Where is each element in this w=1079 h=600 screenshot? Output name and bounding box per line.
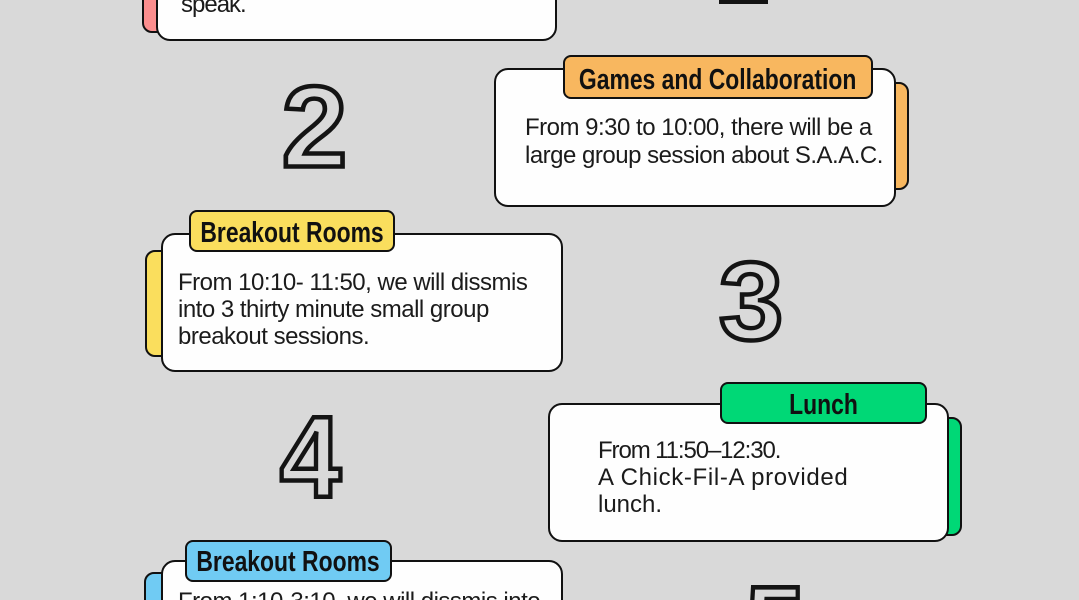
svg-text:3: 3 [719, 240, 783, 363]
svg-text:5: 5 [745, 562, 805, 600]
svg-text:2: 2 [282, 63, 348, 191]
svg-text:4: 4 [280, 392, 341, 521]
